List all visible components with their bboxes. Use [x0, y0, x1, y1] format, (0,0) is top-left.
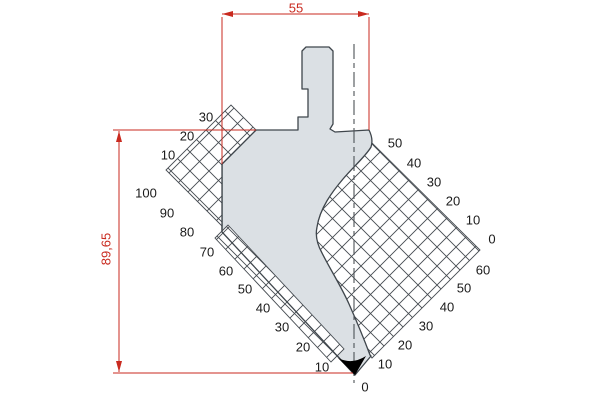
- arrow-right-icon: [358, 11, 369, 17]
- height-dimension-label: 89,65: [100, 233, 113, 266]
- scale-left-lower-4: 60: [219, 265, 233, 278]
- scale-right-lower-5: 10: [378, 358, 392, 371]
- scale-left-lower-5: 50: [238, 283, 252, 296]
- arrow-left-icon: [222, 11, 233, 17]
- scale-right-lower-1: 50: [457, 282, 471, 295]
- scale-right-upper-1: 40: [407, 157, 421, 170]
- arrow-down-icon: [116, 361, 122, 372]
- scale-left-lower-1: 90: [160, 207, 174, 220]
- scale-left-lower-9: 10: [315, 361, 329, 374]
- scale-left-lower-0: 100: [135, 187, 157, 200]
- technical-drawing-canvas: 55 89,65 30 20 10 100 90 80 70 60 50 40 …: [0, 0, 600, 400]
- scale-left-lower-7: 30: [275, 321, 289, 334]
- scale-right-upper-0: 50: [388, 137, 402, 150]
- scale-right-lower-4: 20: [398, 339, 412, 352]
- scale-left-upper-0: 30: [199, 111, 213, 124]
- scale-left-lower-3: 70: [200, 246, 214, 259]
- scale-left-lower-8: 20: [296, 341, 310, 354]
- width-dimension-label: 55: [289, 2, 303, 15]
- scale-right-lower-6: 0: [361, 381, 368, 394]
- scale-left-lower-6: 40: [256, 302, 270, 315]
- scale-right-lower-0: 60: [476, 264, 490, 277]
- arrow-up-icon: [116, 131, 122, 142]
- scale-right-lower-2: 40: [440, 301, 454, 314]
- scale-right-upper-2: 30: [427, 176, 441, 189]
- scale-left-upper-2: 10: [161, 149, 175, 162]
- scale-right-upper-4: 10: [466, 214, 480, 227]
- scale-right-lower-3: 30: [419, 320, 433, 333]
- scale-left-upper-1: 20: [180, 130, 194, 143]
- scale-left-lower-2: 80: [180, 226, 194, 239]
- scale-right-upper-3: 20: [446, 195, 460, 208]
- scale-right-upper-5: 0: [488, 233, 495, 246]
